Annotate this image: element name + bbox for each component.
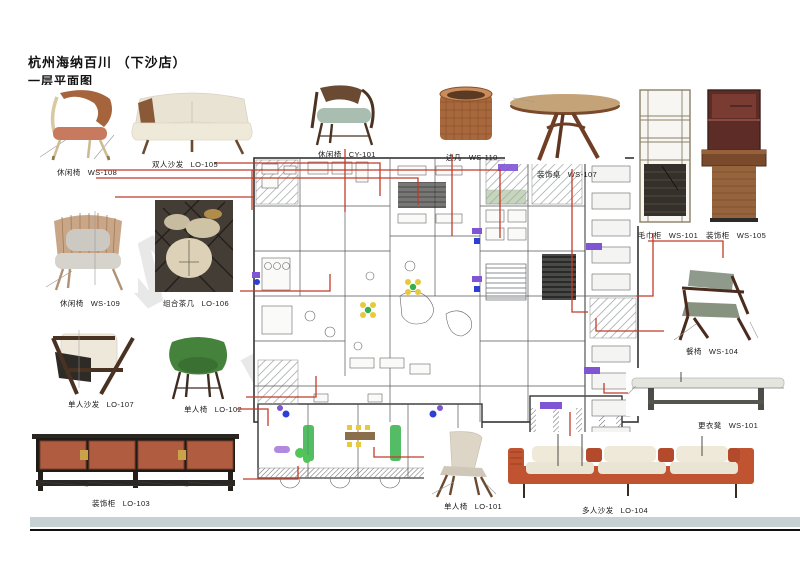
furniture-label: 装饰桌WS-107 [537, 169, 597, 180]
photo-round-table-ws107 [505, 86, 625, 164]
stair-core [542, 254, 576, 300]
furniture-label: 休闲椅WS-109 [60, 298, 120, 309]
project-title: 杭州海纳百川 （下沙店） [28, 52, 187, 71]
furniture-label: 更衣凳WS-101 [698, 420, 758, 431]
photo-changing-bench-ws101 [626, 368, 791, 416]
furniture-label: 毛巾柜WS-101 [638, 230, 698, 241]
photo-console-cabinet-lo103 [28, 428, 243, 494]
furniture-label: 休闲椅CY-101 [318, 149, 376, 160]
photo-coffee-tables-lo106 [155, 200, 233, 292]
furniture-label: 多人沙发LO-104 [582, 505, 648, 516]
furniture-label: 组合茶几LO-106 [163, 298, 229, 309]
pool [486, 264, 526, 300]
photo-single-sofa-lo107 [35, 328, 150, 398]
furniture-label: 餐椅WS-104 [686, 346, 738, 357]
furniture-label: 边几WS-110 [446, 152, 498, 163]
furniture-label: 单人沙发LO-107 [68, 399, 134, 410]
furniture-label: 休闲椅WS-108 [57, 167, 117, 178]
stair-hall [398, 182, 446, 208]
furniture-label: 双人沙发LO-105 [152, 159, 218, 170]
furniture-label: 装饰柜WS-105 [706, 230, 766, 241]
photo-lounge-chair-cy101 [298, 82, 393, 148]
furniture-label: 单人椅LO-101 [444, 501, 502, 512]
photo-lounge-chair-ws109 [38, 205, 138, 293]
photo-dining-chair-ws104 [662, 262, 762, 344]
furniture-label: 装饰柜LO-103 [92, 498, 150, 509]
photo-long-sofa-lo104 [498, 432, 763, 502]
plan-sheet: 杭州海纳百川 （下沙店） 一层平面图 w m m [0, 0, 800, 566]
photo-decor-cabinet-ws105 [700, 86, 768, 226]
photo-towel-cabinet-ws101 [634, 86, 696, 226]
furniture-label: 单人椅LO-102 [184, 404, 242, 415]
photo-single-chair-lo102 [158, 332, 238, 402]
footer-band [30, 517, 800, 527]
photo-side-table-ws110 [428, 82, 503, 150]
footer-rule [30, 529, 800, 531]
photo-single-chair-lo101 [424, 428, 502, 500]
photo-two-seat-sofa-lo105 [122, 85, 262, 155]
